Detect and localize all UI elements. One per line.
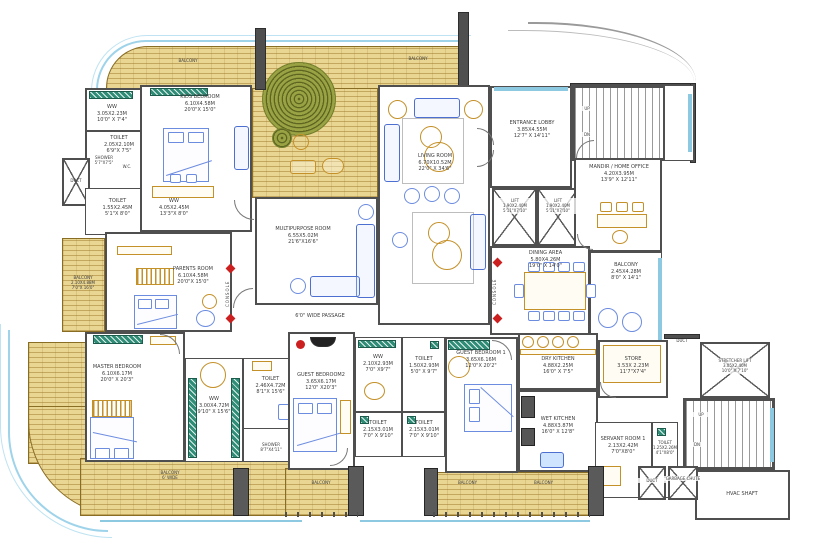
label-balcony-master: BALCONY6' WIDE [140, 470, 200, 480]
master-headboard [92, 400, 132, 417]
master-bed [90, 417, 134, 459]
living-chair-tr [464, 100, 483, 119]
pillar-2 [348, 466, 364, 516]
label-dining: DINING AREA5.80X4.26M19'0" X 14'0" [518, 250, 573, 270]
label-living: LIVING ROOM6.70X10.52M22'0" X 34'6" [404, 153, 466, 173]
stair-glazing-right [688, 94, 692, 152]
balcony-right-chair-1 [598, 308, 618, 328]
label-console-parents: CONSOLE [225, 274, 230, 314]
living-sofa-right [470, 214, 486, 270]
mandir-chair-3 [632, 202, 644, 212]
wardrobe-guest1 [448, 340, 490, 350]
glazing-bottom-edge [100, 520, 302, 522]
label-stretcher: STRETCHER LIFT3.05X2.40M10'0" X 7'10" [706, 358, 764, 374]
label-servant: SERVANT ROOM 12.13X2.42M7'0"X8'0" [598, 436, 648, 456]
label-duct-bottom: DUCT [638, 478, 666, 483]
multipurpose-sofa-horiz [310, 276, 360, 297]
terrace-table [293, 134, 309, 150]
burner-3 [552, 336, 564, 348]
dining-chair-b3 [558, 311, 570, 321]
balcony-right-chair-2 [622, 312, 642, 332]
wall-stub-top-1 [255, 28, 266, 90]
living-chair-b1 [392, 232, 408, 248]
label-toilet-ml: TOILET1.55X2.45M5'1"X 8'0" [90, 198, 145, 218]
label-shower-master: SHOWER8'7"X4'11" [250, 442, 292, 452]
parents-chair [196, 310, 215, 327]
label-balcony-left: BALCONY2.10X4.88M7'0"X 16'0" [62, 275, 104, 291]
label-guest1: GUEST BEDROOM 13.65X6.16M12'0"X 20'2" [452, 350, 510, 370]
tree-large [262, 62, 336, 136]
parents-bed [134, 295, 177, 329]
label-multipurpose: MULTIPURPOSE ROOM6.55X5.02M21'6"X16'6" [268, 226, 338, 246]
dining-table [524, 272, 586, 310]
label-stairs-bottom-dn: DN [688, 442, 706, 447]
terrace-seat-1 [290, 160, 316, 174]
label-hvac: HVAC SHAFT [710, 491, 774, 498]
label-wet-kitchen: WET KITCHEN4.88X3.87M16'0" X 12'8" [530, 416, 586, 436]
balcony-master-bottom [80, 458, 302, 516]
label-toilet-g2: TOILET2.15X3.01M7'0" X 9'10" [356, 420, 400, 440]
room-ww-guest [355, 337, 402, 412]
dining-chair-t4 [573, 262, 585, 272]
label-toilet-g1: TOILET1.50X2.93M5'0" X 9'7" [404, 356, 444, 376]
kids-cabinet [234, 126, 249, 170]
multipurpose-pouf-2 [358, 204, 374, 220]
label-passage: 6'0" WIDE PASSAGE [280, 313, 360, 320]
dining-chair-r [586, 284, 596, 298]
burner-2 [537, 336, 549, 348]
label-parents: PARENTS ROOM6.10X4.58M20'0"X 15'0" [158, 266, 228, 286]
dining-chair-b2 [543, 311, 555, 321]
living-sofa-left [384, 124, 400, 182]
label-lift-2: LIFT1.90X2.40M5'11"X7'10" [539, 198, 577, 214]
wardrobe-master [93, 335, 143, 344]
wet-kitchen-sink [540, 452, 564, 468]
label-toilet-tl: TOILET2.05X2.10M6'9"X 7'5" [95, 135, 143, 155]
ww-guest-mirror [364, 382, 385, 400]
mandir-chair-2 [616, 202, 628, 212]
label-balcony-right: BALCONY2.45X4.28M8'0" X 14'1" [600, 262, 652, 282]
floor-plan: KIDS BEDROOM6.10X4.58M20'0"X 15'0" WW3.0… [0, 0, 819, 550]
stair-bottom-glazing [770, 408, 774, 462]
staircase-bottom [683, 398, 775, 470]
dining-chair-b1 [528, 311, 540, 321]
guest1-bed [464, 384, 512, 432]
label-ww-master: WW3.00X4.72M9'10" X 15'6" [192, 396, 236, 416]
label-guest2: GUEST BEDROOM23.65X6.17M12'0" X20'3" [292, 372, 350, 392]
kids-chair-1 [170, 174, 181, 183]
parents-table [202, 294, 217, 309]
dining-chair-l [514, 284, 524, 298]
label-duct-topright: DUCT [668, 338, 696, 343]
label-balcony-kitchen: BALCONY [516, 480, 571, 485]
label-dry-kitchen: DRY KITCHEN4.88X2.25M16'0" X 7'5" [530, 356, 586, 376]
guest2-dresser [340, 400, 351, 434]
wall-stub-top-2 [458, 12, 469, 92]
wardrobe-ww-tl-top [89, 91, 133, 99]
kids-dresser [152, 186, 214, 198]
balcony-mullions-1 [285, 512, 358, 517]
terrace-seat-2 [322, 158, 344, 174]
entry-path-arc-2 [508, 30, 694, 86]
tree-small [272, 128, 292, 148]
master-toilet-sink [252, 361, 272, 371]
label-master: MASTER BEDROOM6.10X6.17M20'0" X 20'3" [88, 364, 146, 384]
entrance-glazing [494, 87, 568, 91]
toilet-sv-geyser [657, 428, 666, 436]
label-ww-tl: WW3.05X2.23M10'0" X 7'4" [90, 104, 134, 124]
label-ww-ml: WW4.05X2.45M13'3"X 8'0" [148, 198, 200, 218]
glazing-bottom-edge-2 [360, 520, 590, 522]
living-chair-g1 [404, 188, 420, 204]
wardrobe-ww-guest [358, 340, 396, 348]
label-garbage: GARBAGE CHUTE [664, 476, 702, 481]
mandir-chair-1 [600, 202, 612, 212]
pillar-3 [424, 468, 438, 516]
pillar-1 [233, 468, 249, 516]
pillar-4 [588, 466, 604, 516]
parents-bench [117, 246, 172, 255]
balcony-guest1-kitchen [433, 472, 590, 516]
toilet-g1-geyser [430, 341, 439, 349]
label-balcony-topleft: BALCONY [158, 58, 218, 63]
label-ww-guest: WW2.10X2.93M7'0" X9'7" [358, 354, 398, 374]
mandir-seat [612, 230, 628, 244]
label-lift-1: LIFT1.90X2.40M5'11"X7'10" [495, 198, 535, 214]
lift-1 [492, 188, 537, 246]
label-balcony-guest1: BALCONY [440, 480, 495, 485]
label-toilet-servant: TOILET1.25X2.26M4'1"X8'0" [650, 440, 680, 456]
label-balcony-guest2: BALCONY [292, 480, 350, 485]
burner-1 [522, 336, 534, 348]
label-kids-bedroom: KIDS BEDROOM6.10X4.58M20'0"X 15'0" [160, 94, 240, 114]
label-mandir: MANDIR / HOME OFFICE4.20X3.95M13'9" X 12… [586, 164, 652, 184]
label-stairs-top-dn: DN [578, 132, 596, 137]
label-stairs-top-up: UP [578, 106, 596, 111]
guest2-bed [293, 398, 337, 452]
balcony-right-glazing [658, 258, 662, 342]
living-chair-g2 [424, 186, 440, 202]
mandir-table [597, 214, 647, 228]
master-ww-mirror [200, 362, 226, 388]
living-sofa-top [414, 98, 460, 118]
label-toilet-g3: TOILET2.15X3.01M7'0" X 9'10" [403, 420, 445, 440]
label-console-dining: CONSOLE [492, 270, 497, 314]
dining-chair-b4 [573, 311, 585, 321]
lift-2 [537, 188, 579, 246]
burner-4 [567, 336, 579, 348]
dry-kitchen-counter [520, 349, 596, 355]
label-store: STORE3.53X 2.23M11'7"X7'4" [610, 356, 656, 376]
wardrobe-master-ww-left [188, 378, 197, 458]
living-chair-g3 [444, 188, 460, 204]
wet-kitchen-appliance-1 [521, 396, 535, 418]
guest2-red-marker [296, 340, 305, 349]
garbage-chute-box [668, 466, 698, 500]
label-wc-tl: W.C. [112, 164, 142, 169]
balcony-mullions-2 [433, 512, 590, 517]
door-parents [233, 288, 253, 308]
kids-chair-2 [186, 174, 197, 183]
label-entrance: ENTRANCE LOBBY3.85X4.55M12'7" X 14'11" [502, 120, 562, 140]
label-balcony-topright: BALCONY [388, 56, 448, 61]
living-chair-tl [388, 100, 407, 119]
label-toilet-master: TOILET2.46X4.72M8'1"X 15'6" [248, 376, 293, 396]
wardrobe-master-ww-right [231, 378, 240, 458]
label-duct-left: DUCT [61, 178, 91, 183]
living-table-2b [432, 240, 462, 270]
label-stairs-bottom-up: UP [692, 412, 710, 417]
multipurpose-pouf-1 [290, 278, 306, 294]
